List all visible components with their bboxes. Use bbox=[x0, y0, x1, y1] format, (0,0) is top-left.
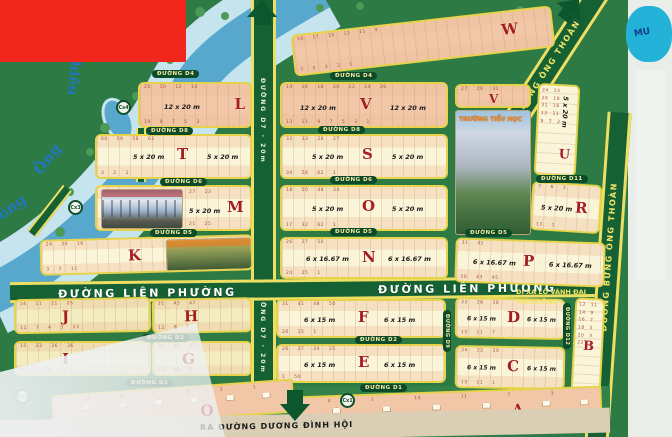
block-F-plots-top: 31 41 48 50 bbox=[282, 302, 336, 307]
block-J-letter: J bbox=[62, 309, 69, 324]
block-U-dim: 5 x 20 m bbox=[560, 96, 570, 128]
block-O-dim-right: 5 x 20 m bbox=[392, 205, 423, 213]
block-T-dim-left: 5 x 20 m bbox=[133, 153, 164, 161]
north-arrow-icon bbox=[247, 0, 277, 17]
street-label-d2-left: ĐƯỜNG D2 bbox=[142, 334, 189, 342]
block-G-plots-bottom: 15 12 7 bbox=[158, 368, 193, 373]
block-E-letter: E bbox=[358, 355, 369, 370]
street-label-d5-left: ĐƯỜNG D5 bbox=[150, 229, 197, 237]
street-label-d6-right: ĐƯỜNG D6 bbox=[330, 176, 377, 184]
block-N-dim-right: 6 x 16.67 m bbox=[388, 255, 431, 263]
block-I-letter: I bbox=[62, 352, 69, 367]
school-caption: TRƯỜNG TIỂU HỌC bbox=[459, 116, 522, 123]
block-N-dim-left: 6 x 16.67 m bbox=[306, 255, 349, 263]
street-label-d5-right: ĐƯỜNG D5 bbox=[465, 229, 512, 237]
block-D-plots-top: 22 26 28 bbox=[461, 300, 499, 306]
estate-map-photo: ông Ông Nhiêu ĐƯỜNG D7 - 20m ĐƯỜNG D7 - … bbox=[0, 0, 672, 437]
block-O-plots-top: 18 50 48 34 bbox=[286, 188, 340, 193]
block-W-letter: W bbox=[500, 21, 518, 38]
block-D-plots-bottom: 13 11 7 bbox=[461, 330, 496, 336]
block-B: 12 11 14 9 16 7 18 5 20 3 22 1 B bbox=[570, 297, 605, 395]
block-J: 14 11 21 25 J 11 7 4 3 23 bbox=[14, 297, 152, 334]
block-E-plots-top: 26 27 24 25 bbox=[282, 347, 336, 352]
block-V: 14 16 18 20 22 24 26 12 x 20 m V 12 x 20… bbox=[280, 82, 448, 128]
block-O: 18 50 48 34 5 x 20 m O 5 x 20 m 17 32 62… bbox=[280, 185, 448, 231]
block-S-dim-right: 5 x 20 m bbox=[392, 153, 423, 161]
block-F: 31 41 48 50 6 x 15 m F 6 x 15 m 20 15 1 bbox=[276, 299, 446, 338]
street-label-d11: ĐƯỜNG D11 bbox=[536, 175, 588, 183]
block-E-dim-right: 6 x 15 m bbox=[384, 361, 415, 369]
block-F-dim-right: 6 x 15 m bbox=[384, 316, 415, 324]
street-label-d12: ĐƯỜNG D12 bbox=[563, 303, 571, 349]
block-P-letter: P bbox=[523, 254, 535, 269]
block-K-letter: K bbox=[128, 248, 141, 263]
block-N-letter: N bbox=[362, 250, 376, 265]
block-C-dim-left: 6 x 15 m bbox=[467, 364, 496, 372]
destination-note-line1: ĐI XA LỘ VÀNH ĐAI bbox=[516, 288, 586, 296]
block-G-letter: G bbox=[182, 352, 195, 367]
block-V-dim-left: 12 x 20 m bbox=[300, 104, 336, 112]
block-S-plots-bottom: 30 58 62 1 bbox=[286, 171, 336, 176]
block-V-plots-top: 14 16 18 20 22 24 26 bbox=[286, 85, 387, 90]
block-V-annex: 27 29 31 V bbox=[455, 84, 531, 108]
market-photo bbox=[166, 237, 253, 271]
block-R-letter: R bbox=[575, 201, 588, 217]
street-label-d2-right: ĐƯỜNG D2 bbox=[355, 336, 402, 344]
block-T-plots-top: 60 59 58 62 bbox=[101, 137, 155, 142]
block-E: 26 27 24 25 6 x 15 m E 6 x 15 m 1 50 bbox=[276, 344, 446, 383]
block-G: 36 42 47 G 15 12 7 bbox=[152, 341, 252, 376]
block-T-plots-bottom: 3 2 1 bbox=[101, 171, 129, 176]
block-P-plots-top: 31 41 bbox=[462, 241, 485, 247]
street-label-d6-left: ĐƯỜNG D6 bbox=[160, 178, 207, 186]
block-I-plots-top: 15 23 26 36 bbox=[20, 344, 74, 349]
block-U: 24 23 26 19 31 16 13 11 9 7 2 5 x 20 m U bbox=[534, 83, 581, 177]
block-S-dim-left: 5 x 20 m bbox=[312, 153, 343, 161]
block-J-plots-bottom: 11 7 4 3 23 bbox=[20, 325, 79, 331]
block-L-plots-top: 20 10 12 14 bbox=[144, 85, 198, 90]
block-F-letter: F bbox=[358, 310, 369, 325]
street-label-d4-right: ĐƯỜNG D4 bbox=[330, 72, 377, 80]
block-K-plots-top: 24 20 16 bbox=[46, 242, 84, 248]
block-S: 32 33 28 27 5 x 20 m S 5 x 20 m 30 58 62… bbox=[280, 134, 448, 179]
block-L-letter: L bbox=[234, 97, 245, 112]
road-d7-label-top: ĐƯỜNG D7 - 20m bbox=[259, 78, 266, 164]
block-K: 24 20 16 K 3 7 11 bbox=[40, 234, 254, 276]
block-V-plots-bottom: 13 11 9 7 5 3 1 bbox=[286, 120, 370, 125]
block-M-plots-bottom: 21 25 bbox=[189, 222, 211, 227]
block-S-letter: S bbox=[362, 147, 373, 162]
block-T: 60 59 58 62 5 x 20 m T 5 x 20 m 3 2 1 bbox=[95, 134, 252, 179]
street-label-d4-left: ĐƯỜNG D4 bbox=[152, 70, 199, 78]
block-I-plots-bottom: 9 6 20 22 bbox=[20, 368, 67, 373]
block-O-dim-left: 5 x 20 m bbox=[312, 205, 343, 213]
street-label-d1-left: ĐƯỜNG D1 bbox=[126, 379, 173, 387]
block-C-plots-bottom: 13 11 1 bbox=[461, 380, 496, 386]
block-P-dim-right: 6 x 16.67 m bbox=[549, 261, 592, 270]
block-P: 31 41 6 x 16.67 m P 6 x 16.67 m 20 43 45 bbox=[454, 237, 605, 287]
block-I: 15 23 26 36 I 9 6 20 22 bbox=[14, 341, 151, 376]
block-L-dim: 12 x 20 m bbox=[164, 103, 200, 111]
destination-note-line2: PHÍA ĐÔNG bbox=[516, 298, 558, 306]
shophouse-photo bbox=[101, 189, 183, 229]
block-H-plots-bottom: 12 8 7 bbox=[158, 325, 189, 331]
block-P-dim-left: 6 x 16.67 m bbox=[473, 258, 516, 267]
block-H: 35 43 47 H 12 8 7 bbox=[152, 297, 253, 334]
block-C-letter: C bbox=[507, 359, 519, 374]
block-B-letter: B bbox=[583, 340, 595, 354]
destination-note: ĐI XA LỘ VÀNH ĐAI PHÍA ĐÔNG bbox=[516, 288, 586, 308]
street-label-d8-right: ĐƯỜNG D8 bbox=[318, 126, 365, 134]
street-label-d8-left: ĐƯỜNG D8 bbox=[146, 127, 193, 135]
block-M-letter: M bbox=[227, 200, 244, 215]
map-margin bbox=[628, 0, 672, 437]
block-L: 20 10 12 14 12 x 20 m L 19 9 7 5 3 bbox=[138, 82, 252, 128]
block-C-dim-right: 6 x 15 m bbox=[527, 365, 556, 373]
block-S-plots-top: 32 33 28 27 bbox=[286, 137, 340, 142]
block-D-dim-right: 6 x 15 m bbox=[527, 316, 556, 324]
block-F-dim-left: 6 x 15 m bbox=[304, 316, 335, 324]
school-photo: TRƯỜNG TIỂU HỌC bbox=[455, 110, 531, 235]
block-M-dim: 5 x 20 m bbox=[189, 207, 220, 215]
marker-cx1: Cx1 bbox=[340, 393, 355, 408]
block-D-dim-left: 6 x 15 m bbox=[467, 315, 496, 323]
block-T-dim-right: 5 x 20 m bbox=[207, 153, 238, 161]
block-T-letter: T bbox=[177, 147, 188, 162]
block-N: 26 27 50 6 x 16.67 m N 6 x 16.67 m 24 25… bbox=[280, 237, 448, 279]
block-N-plots-top: 26 27 50 bbox=[286, 240, 324, 245]
block-K-plots-bottom: 3 7 11 bbox=[46, 266, 77, 272]
block-V-letter: V bbox=[360, 97, 372, 112]
block-L-plots-bottom: 19 9 7 5 3 bbox=[144, 120, 200, 125]
block-O-plots-bottom: 17 32 62 1 bbox=[286, 223, 336, 228]
road-d7-label-bottom: ĐƯỜNG D7 - 20m bbox=[259, 288, 266, 374]
block-G-plots-top: 36 42 47 bbox=[158, 344, 196, 349]
marker-cx2: Cx2 bbox=[15, 389, 30, 404]
block-M: 27 23 5 x 20 m M 21 25 bbox=[95, 185, 252, 231]
marker-cs4: Cs4 bbox=[116, 100, 131, 115]
street-label-d5-mid: ĐƯỜNG D5 bbox=[330, 228, 377, 236]
block-O-letter: O bbox=[362, 199, 375, 214]
street-label-d9: ĐƯỜNG D9 bbox=[443, 310, 451, 352]
street-label-d1-right: ĐƯỜNG D1 bbox=[360, 384, 407, 392]
south-arrow-icon bbox=[280, 404, 310, 421]
south-arrow-stem bbox=[287, 390, 303, 405]
block-R: 7 6 3 5 x 20 m R 13 1 bbox=[530, 181, 603, 234]
block-F-plots-bottom: 20 15 1 bbox=[282, 330, 317, 335]
block-N-plots-bottom: 24 25 1 bbox=[286, 271, 321, 276]
north-arrow-stem bbox=[255, 16, 271, 25]
block-V-dim-right: 12 x 20 m bbox=[390, 104, 426, 112]
block-C-plots-top: 24 22 20 bbox=[461, 348, 499, 354]
block-V-annex-letter: V bbox=[489, 93, 498, 105]
block-H-letter: H bbox=[184, 309, 198, 324]
road-duong-dinh-hoi-label: RA ĐƯỜNG DƯƠNG ĐÌNH HỘI bbox=[200, 420, 353, 432]
block-E-dim-left: 6 x 15 m bbox=[304, 361, 335, 369]
block-C: 24 22 20 6 x 15 m C 6 x 15 m 13 11 1 bbox=[455, 345, 566, 390]
block-M-plots-top: 27 23 bbox=[189, 190, 211, 195]
marker-cx3: Cx3 bbox=[68, 200, 83, 215]
block-U-letter: U bbox=[558, 148, 570, 162]
road-d7: ĐƯỜNG D7 - 20m ĐƯỜNG D7 - 20m bbox=[251, 0, 276, 414]
block-R-plots-bottom: 13 1 bbox=[536, 222, 555, 229]
red-overlay-box bbox=[0, 0, 186, 62]
block-D-letter: D bbox=[507, 310, 520, 325]
